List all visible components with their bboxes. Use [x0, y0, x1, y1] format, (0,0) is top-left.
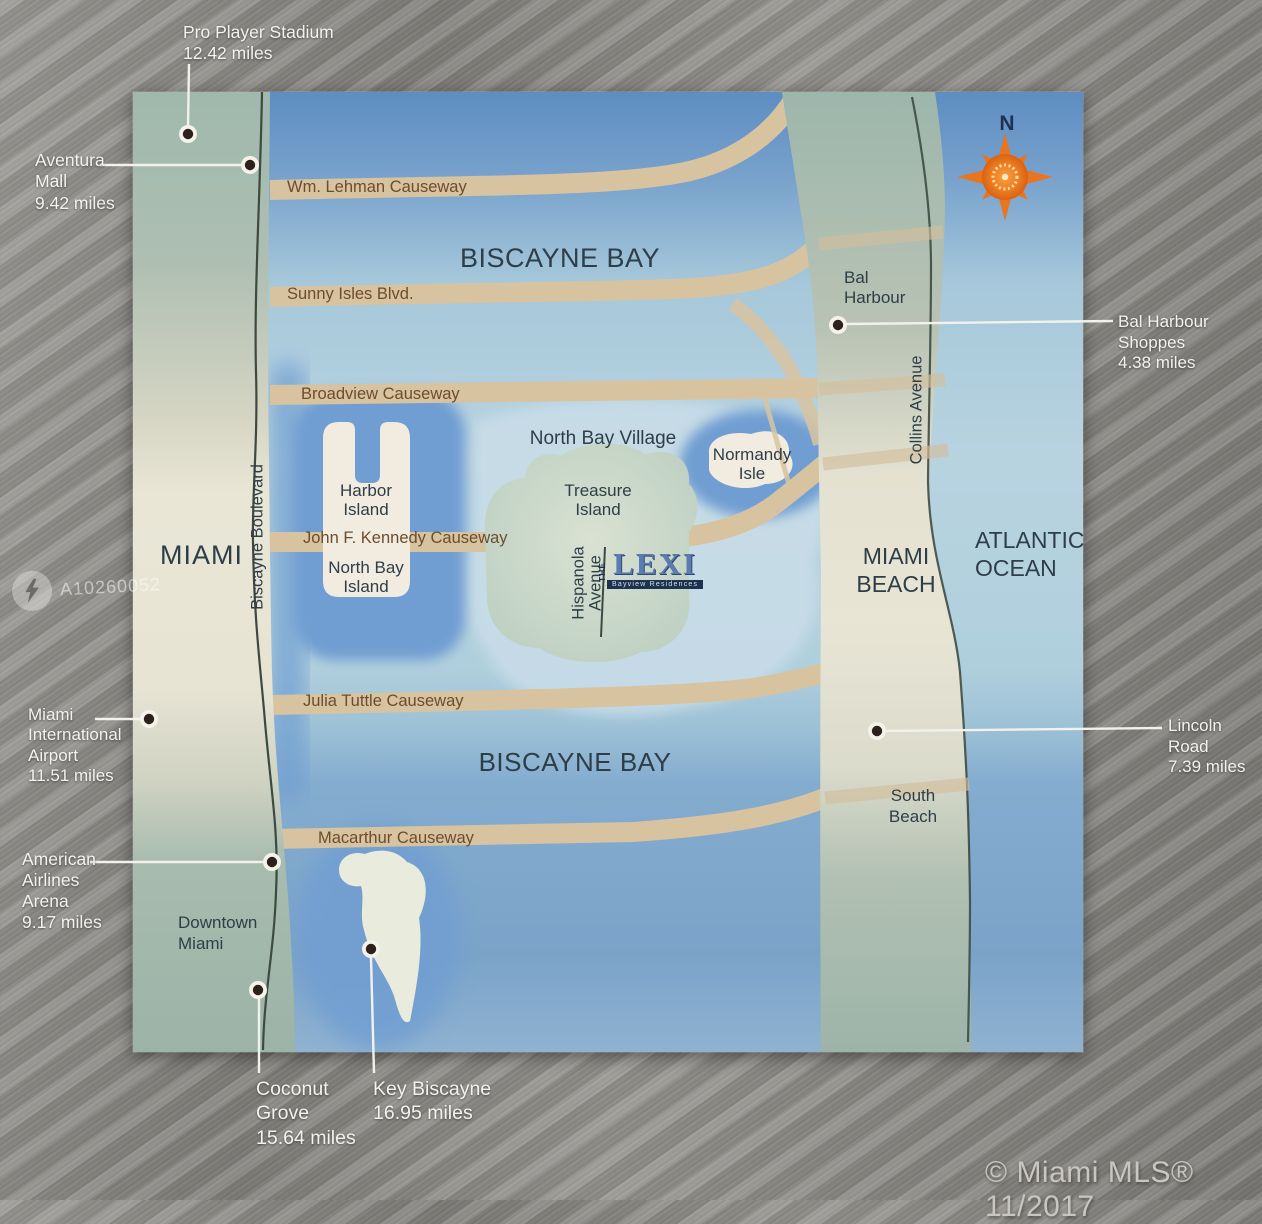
callout-distance: 11.51 miles: [28, 766, 122, 786]
label-bal-harbour: Bal Harbour: [844, 268, 905, 308]
label-normandy-isle: Normandy Isle: [713, 445, 791, 484]
callout-name: Bal Harbour Shoppes: [1118, 312, 1209, 353]
the-lexi-logo: THE LEXI Bayview Residences: [597, 550, 703, 589]
label-sunny-isles-blvd: Sunny Isles Blvd.: [287, 285, 414, 304]
callout-pro-player-stadium: Pro Player Stadium 12.42 miles: [183, 22, 334, 65]
callout-name: Key Biscayne: [373, 1077, 491, 1101]
label-downtown-miami: Downtown Miami: [178, 913, 257, 954]
callout-aventura-mall: Aventura Mall 9.42 miles: [35, 150, 115, 214]
lexi-name: LEXI: [613, 550, 697, 579]
callout-distance: 7.39 miles: [1168, 757, 1245, 778]
lexi-tagline: Bayview Residences: [607, 580, 703, 589]
label-south-beach: South Beach: [889, 786, 937, 827]
callout-distance: 16.95 miles: [373, 1101, 491, 1125]
label-miami-beach: MIAMI BEACH: [856, 543, 935, 598]
callout-distance: 4.38 miles: [1118, 353, 1209, 374]
callout-distance: 9.17 miles: [22, 912, 102, 933]
callout-key-biscayne: Key Biscayne 16.95 miles: [373, 1077, 491, 1126]
callout-bal-harbour-shoppes: Bal Harbour Shoppes 4.38 miles: [1118, 312, 1209, 374]
callout-name: Pro Player Stadium: [183, 22, 334, 43]
callout-lincoln-road: Lincoln Road 7.39 miles: [1168, 716, 1245, 778]
listing-id-watermark: A10260052: [11, 564, 162, 612]
callout-name: Miami International Airport: [28, 705, 122, 766]
callout-american-airlines-arena: American Airlines Arena 9.17 miles: [22, 849, 102, 933]
photo-of-location-map: { "photo": { "listing_watermark": "A1026…: [0, 0, 1262, 1200]
label-north-bay-island: North Bay Island: [328, 558, 404, 597]
lexi-prefix: THE: [597, 558, 607, 586]
label-north-bay-village: North Bay Village: [530, 428, 676, 450]
label-broadview-causeway: Broadview Causeway: [301, 385, 460, 404]
callout-name: Aventura Mall: [35, 150, 115, 193]
label-john-f-kennedy-causeway: John F. Kennedy Causeway: [303, 529, 508, 548]
label-atlantic-ocean: ATLANTIC OCEAN: [975, 527, 1084, 582]
listing-id-text: A10260052: [59, 574, 161, 600]
callout-miami-international-airport: Miami International Airport 11.51 miles: [28, 705, 122, 787]
compass-north-label: N: [999, 112, 1014, 136]
label-harbor-island: Harbor Island: [340, 481, 392, 520]
callout-distance: 12.42 miles: [183, 43, 334, 64]
mls-logo-icon: [11, 570, 53, 612]
label-wm-lehman-causeway: Wm. Lehman Causeway: [287, 178, 467, 197]
mls-copyright-watermark: © Miami MLS® 11/2017: [985, 1156, 1262, 1224]
callout-name: American Airlines Arena: [22, 849, 102, 912]
callout-name: Coconut Grove: [256, 1077, 356, 1126]
label-biscayne-bay-south: BISCAYNE BAY: [479, 748, 672, 778]
callout-name: Lincoln Road: [1168, 716, 1245, 757]
label-julia-tuttle-causeway: Julia Tuttle Causeway: [303, 692, 464, 711]
label-biscayne-bay-north: BISCAYNE BAY: [460, 243, 660, 274]
label-macarthur-causeway: Macarthur Causeway: [318, 829, 474, 848]
label-biscayne-boulevard: Biscayne Boulevard: [249, 464, 268, 610]
label-miami: MIAMI: [160, 540, 243, 571]
callout-distance: 9.42 miles: [35, 193, 115, 214]
callout-coconut-grove: Coconut Grove 15.64 miles: [256, 1077, 356, 1150]
label-collins-avenue: Collins Avenue: [908, 356, 927, 465]
callout-distance: 15.64 miles: [256, 1126, 356, 1150]
label-treasure-island: Treasure Island: [564, 481, 631, 520]
